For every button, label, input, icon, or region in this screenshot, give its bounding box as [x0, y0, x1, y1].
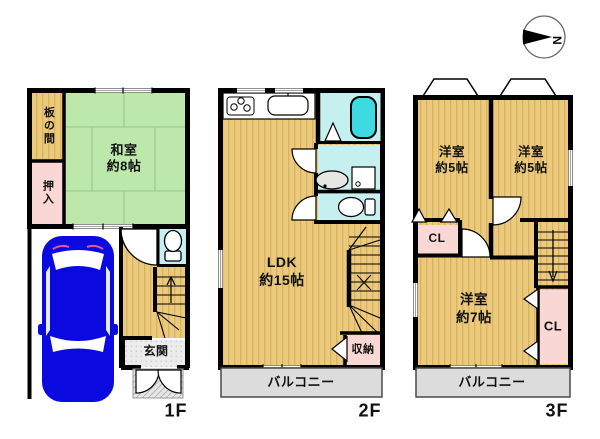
toilet-icon: [165, 231, 182, 262]
toilet-room-1f: [157, 228, 187, 266]
ldk-size-label: 約15帖: [259, 272, 305, 288]
washitsu-size-label: 約8帖: [107, 160, 142, 175]
room5-right-name-label: 洋室: [518, 145, 544, 159]
floor-1f-tag: 1F: [164, 401, 187, 422]
shuno-label: 収納: [352, 344, 375, 357]
closet-right-label: CL: [544, 320, 562, 335]
entrance-porch: [133, 369, 183, 398]
itanoma-label: 板の間: [42, 107, 55, 146]
washbasin-icon: [316, 171, 348, 189]
balcony-3f-label: バルコニー: [458, 376, 525, 391]
balcony-2f-label: バルコニー: [267, 376, 334, 391]
room5-right-size-label: 約5帖: [514, 161, 547, 175]
compass-north-label: N: [550, 36, 564, 45]
genkan-label: 玄関: [143, 345, 168, 359]
closet-left-label: CL: [429, 232, 446, 246]
washing-machine-icon: [352, 167, 375, 189]
room7-size-label: 約7帖: [456, 310, 492, 326]
bay-window: [423, 79, 478, 96]
bathtub-icon: [351, 97, 376, 138]
car-icon: [38, 236, 118, 402]
stove-icon: [227, 97, 254, 115]
floor-2f-tag: 2F: [358, 401, 381, 422]
oshiire-label: 押入: [41, 180, 54, 206]
ldk-name-label: LDK: [267, 254, 297, 270]
room5-left-size-label: 約5帖: [435, 161, 468, 175]
compass-icon: N: [523, 16, 565, 58]
room7-name-label: 洋室: [460, 292, 488, 308]
kitchen-counter: [223, 90, 315, 119]
floor-plan-drawing: N: [0, 0, 600, 439]
washitsu-name-label: 和室: [110, 144, 137, 159]
floor-3f-tag: 3F: [545, 401, 568, 422]
toilet-icon: [339, 198, 376, 217]
floor-plan-image: N 板の間 押入 和室 約8帖 玄関 1F LDK 約15帖 収納 バルコニー …: [0, 0, 600, 439]
bay-window: [500, 79, 556, 96]
room5-left-name-label: 洋室: [439, 145, 465, 159]
